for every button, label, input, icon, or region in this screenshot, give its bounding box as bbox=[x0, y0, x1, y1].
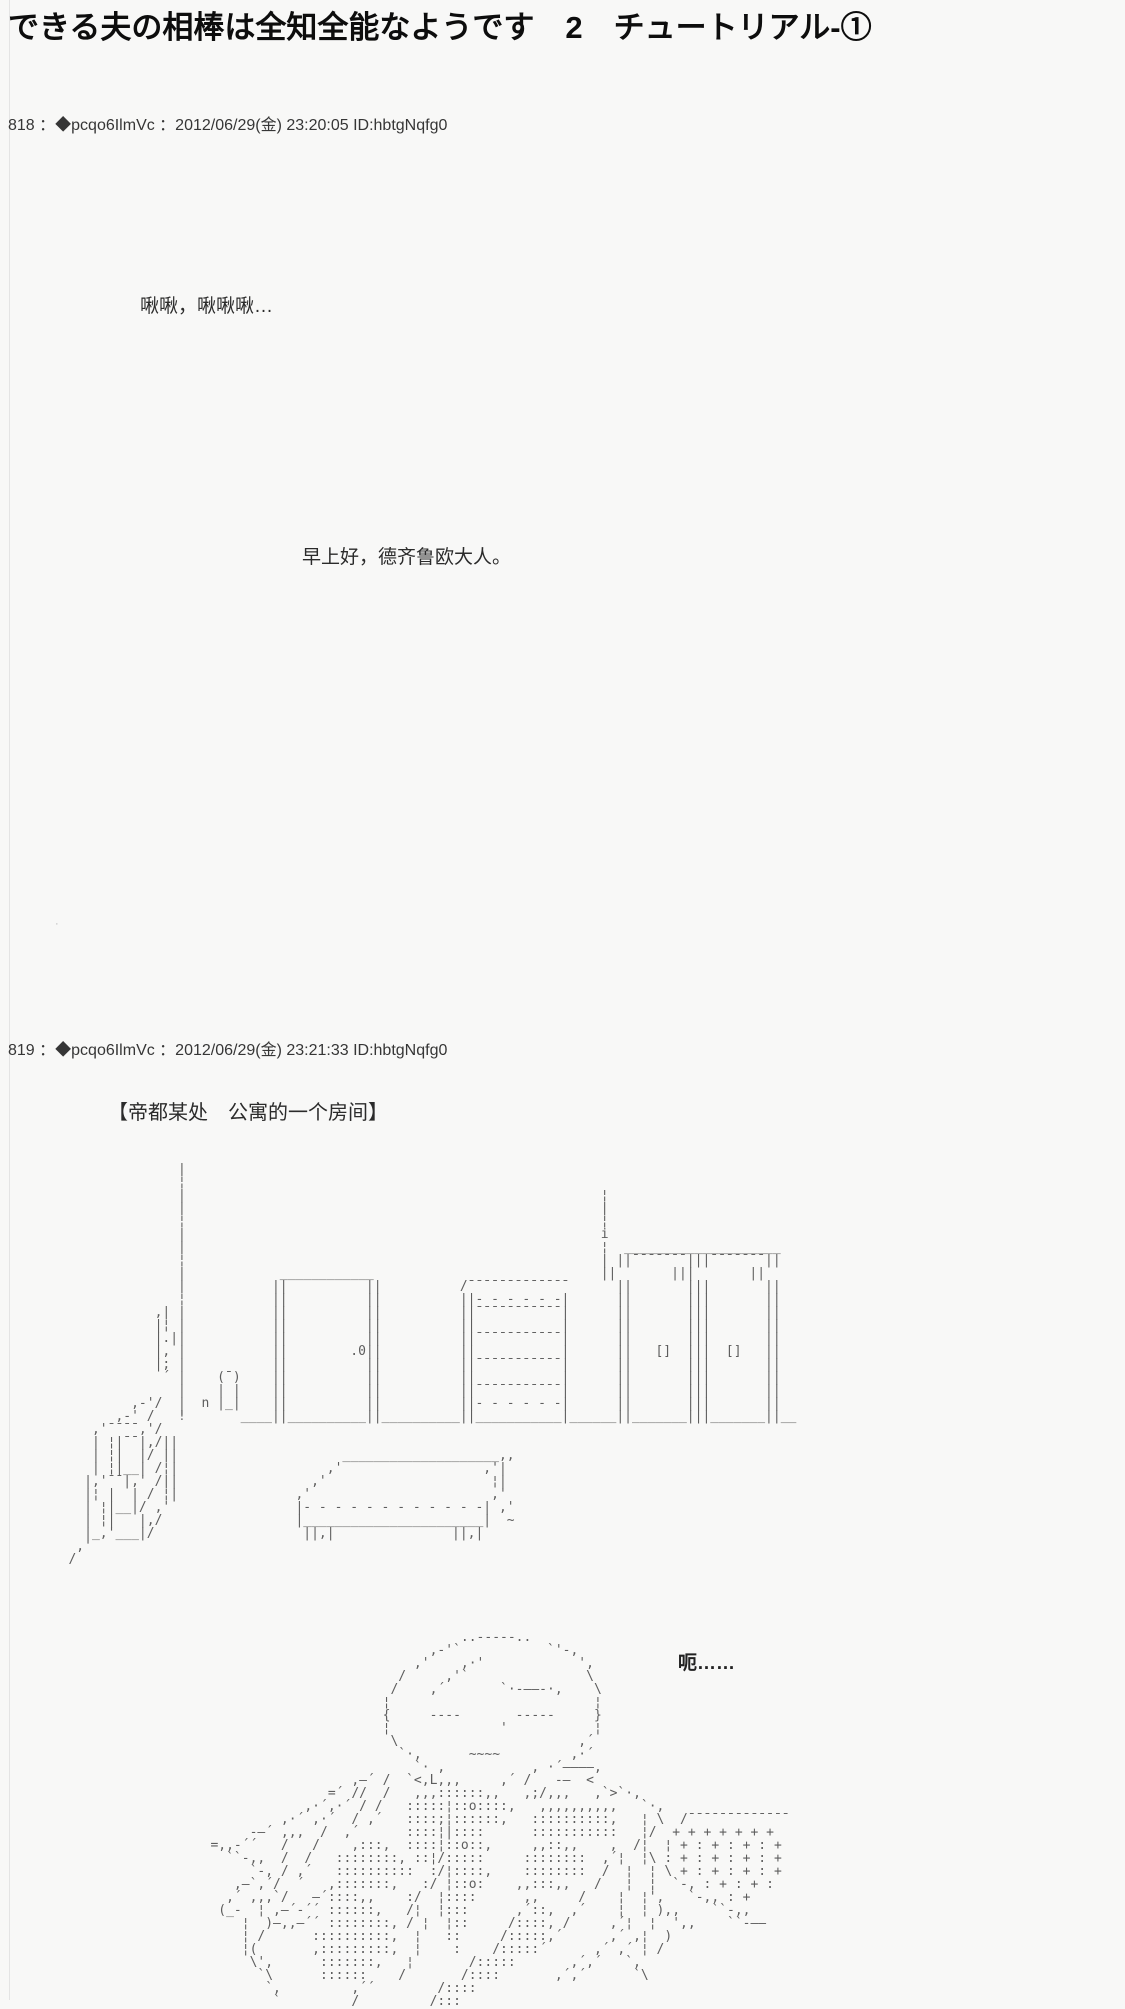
left-edge-line bbox=[9, 0, 10, 2000]
thread-title: できる夫の相棒は全知全能なようです 2 チュートリアル-① bbox=[8, 2, 872, 47]
room-ascii-art: | ¦ | ¦ | | ¦ bbox=[45, 1150, 796, 1566]
character-ascii-art: ..-----.. ,-'` `'-, ,' ,·' ', / ,'` \ bbox=[140, 1592, 790, 2008]
post-818-header: 818 ：◆pcqo6IlmVc ：2012/06/29(金) 23:20:05… bbox=[8, 111, 447, 135]
stray-mark: · bbox=[55, 918, 59, 930]
post-819-header: 819 ：◆pcqo6IlmVc ：2012/06/29(金) 23:21:33… bbox=[8, 1036, 447, 1060]
dialogue-chirp-line: 啾啾，啾啾啾… bbox=[140, 291, 273, 318]
dialogue-greeting-line: 早上好，德齐鲁欧大人。 bbox=[302, 542, 511, 569]
scene-label: 【帝都某处 公寓的一个房间】 bbox=[108, 1096, 388, 1125]
